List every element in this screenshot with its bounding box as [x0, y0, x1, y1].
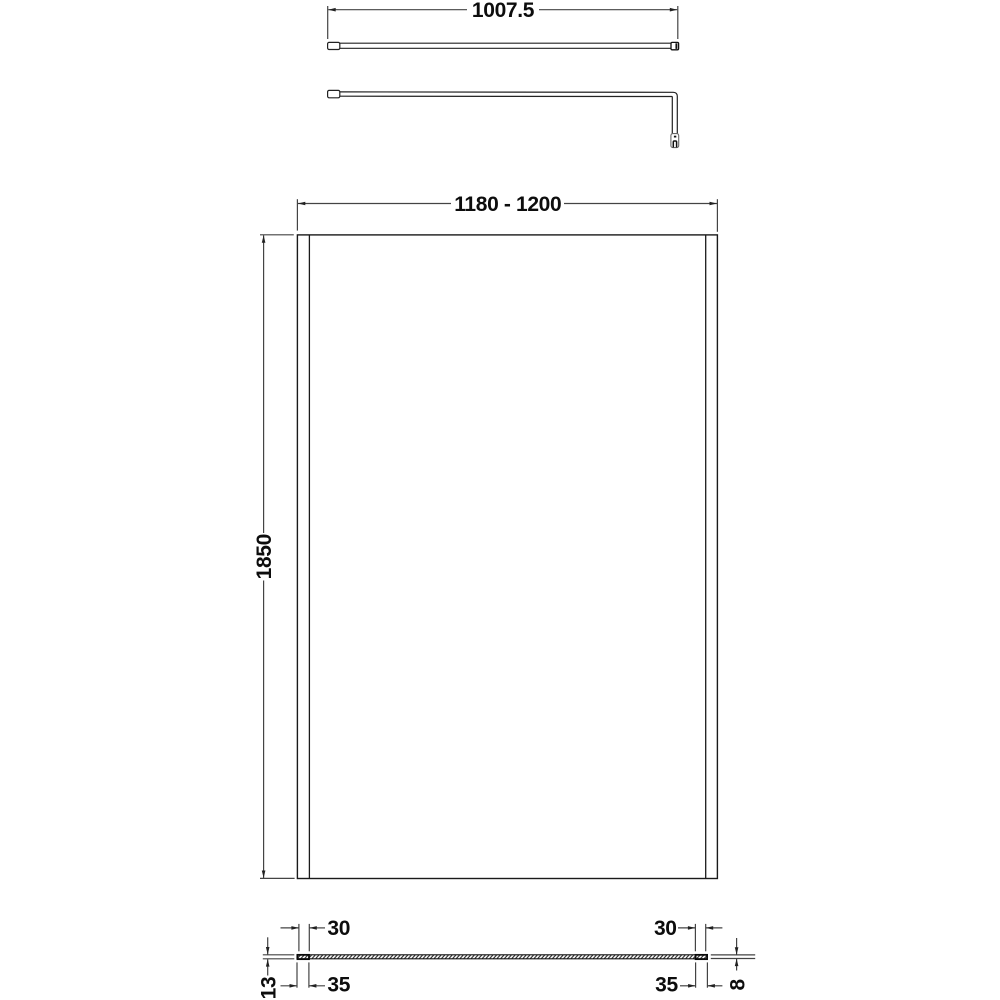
svg-text:13: 13: [258, 977, 281, 1000]
svg-text:35: 35: [327, 974, 350, 997]
svg-text:30: 30: [327, 917, 350, 940]
svg-text:1850: 1850: [253, 534, 276, 579]
svg-text:30: 30: [654, 917, 677, 940]
svg-text:8: 8: [726, 978, 749, 990]
svg-text:35: 35: [655, 974, 678, 997]
svg-text:1007.5: 1007.5: [472, 0, 535, 22]
svg-text:1180 - 1200: 1180 - 1200: [454, 193, 561, 216]
